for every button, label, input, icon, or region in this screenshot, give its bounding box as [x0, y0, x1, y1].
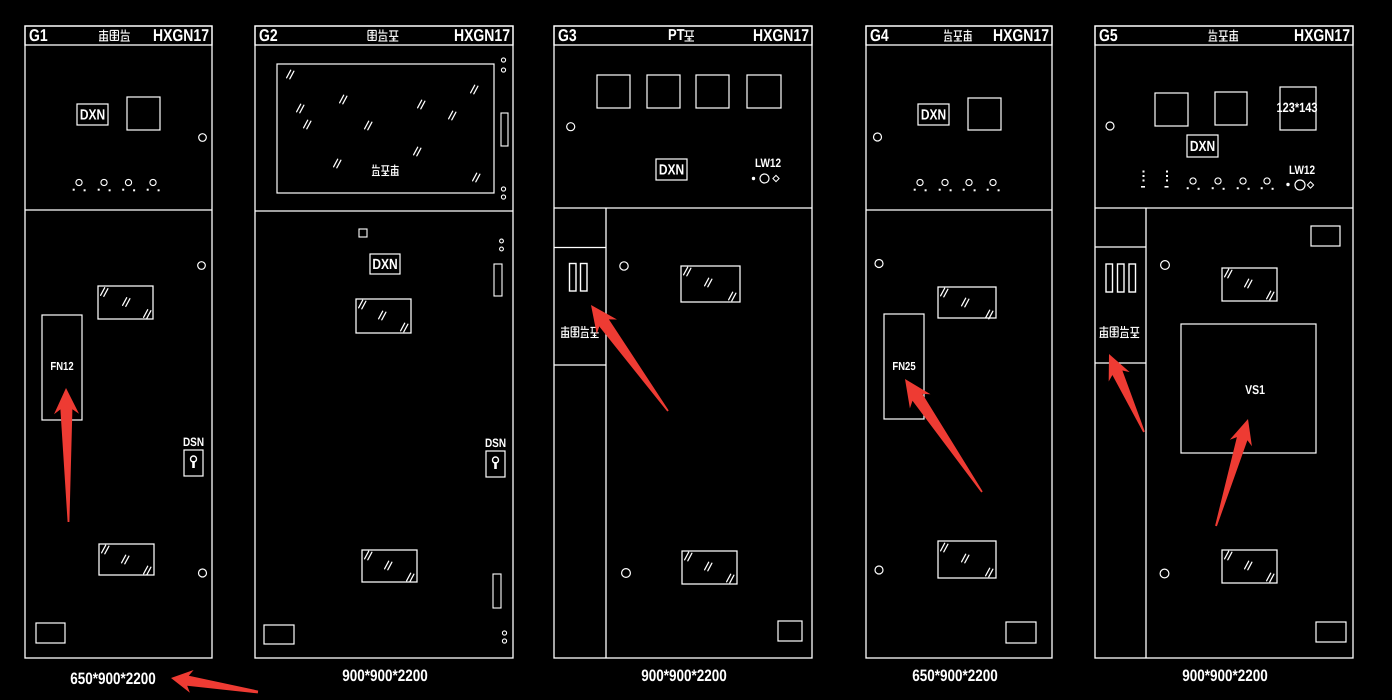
- svg-text:HXGN17: HXGN17: [153, 25, 209, 45]
- svg-text:FN25: FN25: [892, 360, 916, 373]
- svg-text:VS1: VS1: [1245, 383, 1265, 398]
- svg-text:900*900*2200: 900*900*2200: [342, 666, 428, 684]
- svg-text:G2: G2: [259, 25, 278, 45]
- svg-text:900*900*2200: 900*900*2200: [641, 666, 727, 684]
- svg-text:650*900*2200: 650*900*2200: [912, 666, 998, 684]
- svg-text:DXN: DXN: [1190, 138, 1215, 155]
- svg-text:DXN: DXN: [659, 161, 684, 178]
- svg-text:123*143: 123*143: [1277, 101, 1318, 116]
- svg-text:G1: G1: [29, 25, 48, 45]
- svg-text:DXN: DXN: [372, 256, 397, 273]
- svg-text:G5: G5: [1099, 25, 1118, 45]
- svg-text:FN12: FN12: [50, 360, 73, 373]
- svg-text:DSN: DSN: [183, 436, 204, 449]
- svg-text:HXGN17: HXGN17: [1294, 25, 1350, 45]
- svg-text:G3: G3: [558, 25, 577, 45]
- svg-text:LW12: LW12: [755, 157, 782, 170]
- svg-text:650*900*2200: 650*900*2200: [70, 669, 156, 687]
- svg-text:HXGN17: HXGN17: [454, 25, 510, 45]
- svg-text:PT: PT: [668, 25, 685, 43]
- svg-text:DXN: DXN: [80, 106, 105, 123]
- svg-text:900*900*2200: 900*900*2200: [1182, 666, 1268, 684]
- svg-text:G4: G4: [870, 25, 889, 45]
- svg-text:HXGN17: HXGN17: [753, 25, 809, 45]
- svg-text:LW12: LW12: [1289, 164, 1316, 177]
- svg-text:DSN: DSN: [485, 437, 506, 450]
- svg-text:DXN: DXN: [921, 106, 946, 123]
- svg-text:HXGN17: HXGN17: [993, 25, 1049, 45]
